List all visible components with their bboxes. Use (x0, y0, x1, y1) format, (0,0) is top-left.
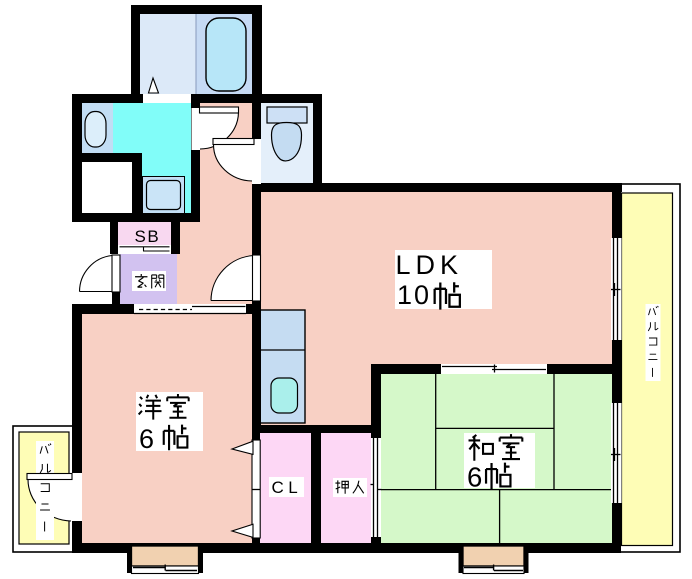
svg-text:LDK: LDK (396, 250, 464, 280)
svg-text:6: 6 (139, 424, 154, 454)
svg-text:10: 10 (397, 280, 431, 310)
svg-text:6: 6 (467, 462, 482, 493)
svg-text:SB: SB (135, 227, 161, 246)
svg-text:CL: CL (272, 478, 303, 497)
